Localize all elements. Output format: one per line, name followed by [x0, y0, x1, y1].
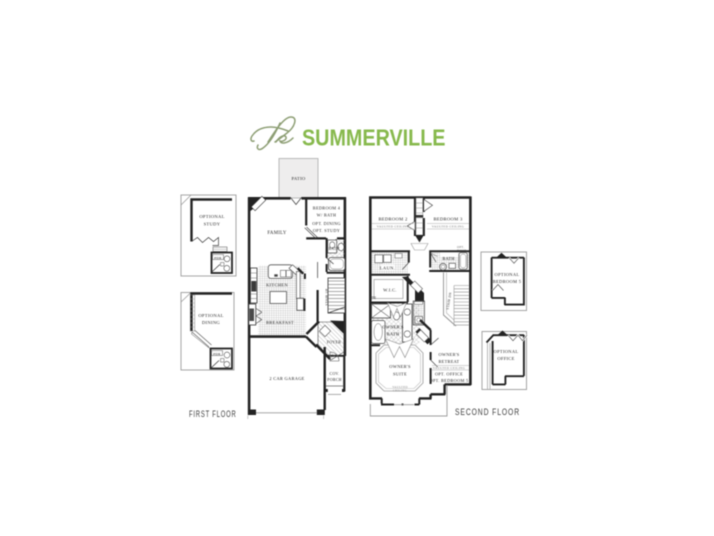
svg-text:OPT. OFFICE: OPT. OFFICE — [435, 372, 463, 377]
svg-text:OPT. BEDROOM 5: OPT. BEDROOM 5 — [430, 378, 469, 383]
svg-text:BREAKFAST: BREAKFAST — [266, 320, 294, 325]
svg-text:FOYER: FOYER — [327, 341, 341, 345]
svg-text:W/ BATH: W/ BATH — [317, 213, 337, 218]
svg-text:BEDROOM 3: BEDROOM 3 — [433, 217, 463, 222]
svg-text:RETREAT: RETREAT — [439, 359, 460, 364]
svg-text:OPTIONAL: OPTIONAL — [198, 313, 223, 318]
svg-text:SECOND FLOOR: SECOND FLOOR — [455, 407, 520, 417]
svg-text:OWNER'S: OWNER'S — [389, 364, 411, 369]
svg-text:VAULTED CEILING: VAULTED CEILING — [377, 225, 410, 229]
svg-text:STUDY: STUDY — [204, 222, 221, 227]
svg-text:SUMMERVILLE: SUMMERVILLE — [302, 125, 446, 151]
svg-text:PORCH: PORCH — [327, 378, 341, 382]
svg-text:OPTIONAL: OPTIONAL — [199, 214, 224, 219]
svg-text:OWNER'S: OWNER'S — [382, 325, 404, 330]
svg-text:PDR: PDR — [213, 352, 221, 356]
svg-text:OPT. STUDY: OPT. STUDY — [313, 228, 340, 233]
svg-text:BATH: BATH — [443, 256, 455, 261]
svg-text:OPT. DINING: OPT. DINING — [312, 221, 341, 226]
svg-text:W.I.C.: W.I.C. — [383, 288, 397, 293]
svg-text:BEDROOM 4: BEDROOM 4 — [313, 206, 341, 211]
svg-text:VAULTED CEILING: VAULTED CEILING — [432, 225, 465, 229]
svg-text:BATH: BATH — [387, 332, 400, 337]
svg-text:DINING: DINING — [202, 320, 221, 325]
svg-text:SUITE: SUITE — [393, 372, 407, 377]
svg-text:PDR: PDR — [214, 256, 222, 260]
svg-text:OPTIONAL: OPTIONAL — [495, 272, 520, 277]
svg-text:OFFICE: OFFICE — [497, 356, 514, 361]
svg-text:VAULTED CEILING: VAULTED CEILING — [433, 366, 466, 370]
svg-text:FIRST FLOOR: FIRST FLOOR — [189, 409, 237, 419]
svg-text:FAMILY: FAMILY — [267, 231, 287, 236]
svg-text:COV.: COV. — [330, 372, 340, 376]
svg-text:BATH: BATH — [328, 247, 339, 251]
svg-text:LAUN.: LAUN. — [380, 266, 395, 271]
svg-text:PATIO: PATIO — [291, 176, 305, 181]
svg-text:CEILING: CEILING — [393, 389, 408, 393]
svg-text:BEDROOM 2: BEDROOM 2 — [378, 217, 408, 222]
svg-text:STAIR UP: STAIR UP — [325, 288, 329, 305]
svg-text:OWNER'S: OWNER'S — [438, 352, 459, 357]
svg-text:OPTIONAL: OPTIONAL — [494, 349, 519, 354]
svg-text:BEDROOM 5: BEDROOM 5 — [493, 279, 522, 284]
svg-text:2 CAR GARAGE: 2 CAR GARAGE — [269, 376, 304, 381]
svg-text:KITCHEN: KITCHEN — [266, 283, 288, 288]
